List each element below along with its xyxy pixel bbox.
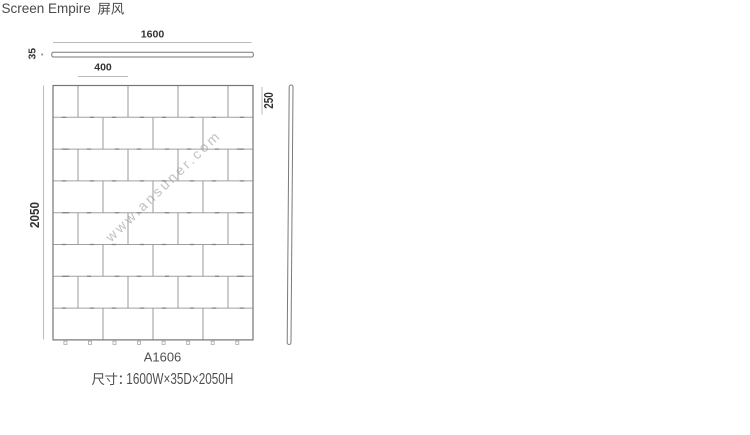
svg-text:A1606: A1606 (144, 350, 182, 365)
svg-text:1600: 1600 (141, 29, 165, 41)
svg-text:2050: 2050 (28, 202, 42, 228)
svg-text:250: 250 (262, 92, 276, 109)
svg-text:1600W×35D×2050H: 1600W×35D×2050H (126, 371, 233, 388)
svg-text:35: 35 (27, 48, 39, 60)
svg-text:400: 400 (94, 62, 112, 74)
svg-text:Screen Empire: Screen Empire (2, 1, 91, 16)
